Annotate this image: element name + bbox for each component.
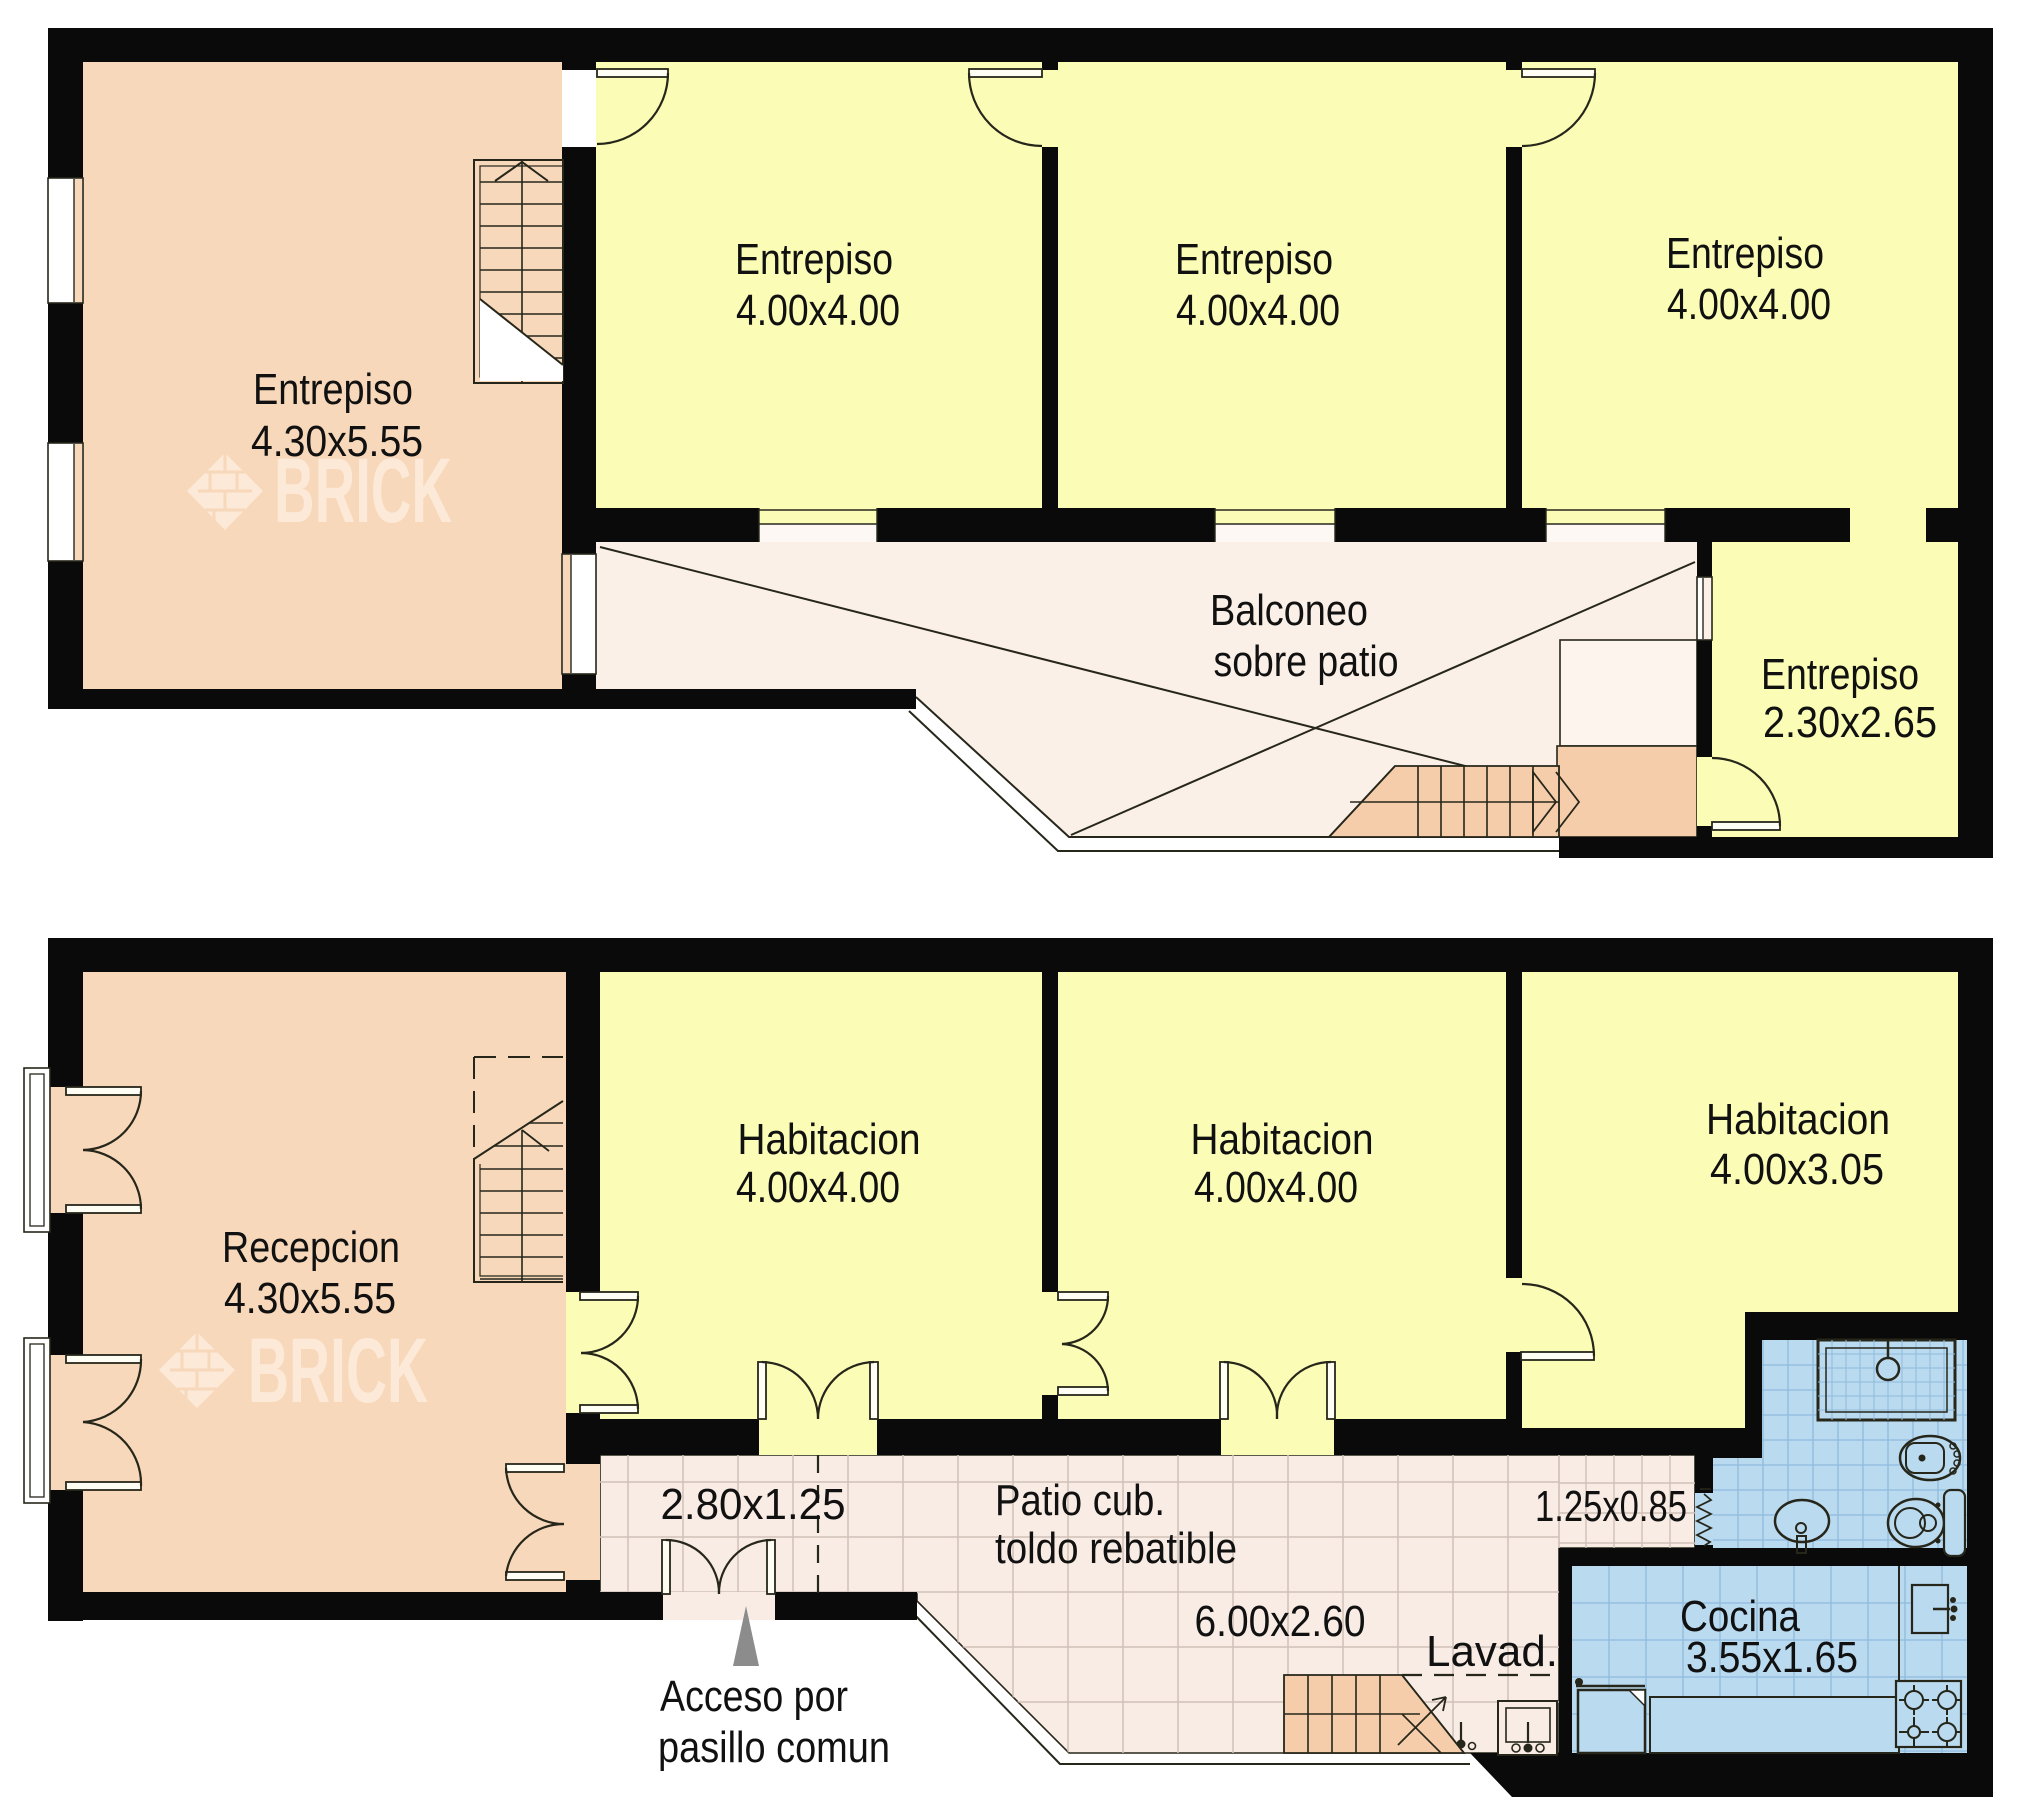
svg-text:Entrepiso: Entrepiso [1666,229,1824,278]
svg-text:1.25x0.85: 1.25x0.85 [1535,1482,1687,1531]
svg-text:4.00x4.00: 4.00x4.00 [736,1163,900,1212]
svg-text:pasillo comun: pasillo comun [658,1723,890,1772]
svg-text:Patio cub.: Patio cub. [995,1476,1165,1525]
svg-text:toldo rebatible: toldo rebatible [995,1524,1237,1573]
svg-text:4.00x4.00: 4.00x4.00 [736,286,900,335]
svg-text:4.00x4.00: 4.00x4.00 [1176,286,1340,335]
svg-text:4.00x4.00: 4.00x4.00 [1667,280,1831,329]
svg-text:3.55x1.65: 3.55x1.65 [1686,1633,1858,1682]
svg-text:4.00x4.00: 4.00x4.00 [1194,1163,1358,1212]
svg-text:Balconeo: Balconeo [1210,586,1368,635]
svg-text:Entrepiso: Entrepiso [1175,235,1333,284]
svg-text:6.00x2.60: 6.00x2.60 [1195,1597,1366,1646]
svg-text:Entrepiso: Entrepiso [1761,650,1919,699]
svg-text:2.80x1.25: 2.80x1.25 [661,1480,846,1529]
svg-text:Lavad.: Lavad. [1426,1627,1558,1676]
svg-text:Habitacion: Habitacion [1191,1115,1374,1164]
svg-text:Recepcion: Recepcion [222,1223,400,1272]
svg-text:Habitacion: Habitacion [1706,1095,1890,1144]
svg-text:Habitacion: Habitacion [738,1115,921,1164]
svg-text:4.30x5.55: 4.30x5.55 [251,417,423,466]
svg-text:BRICK: BRICK [248,1320,428,1422]
svg-text:Acceso por: Acceso por [660,1672,848,1721]
svg-text:Entrepiso: Entrepiso [253,365,413,414]
svg-text:2.30x2.65: 2.30x2.65 [1763,698,1937,747]
svg-text:4.00x3.05: 4.00x3.05 [1710,1145,1884,1194]
svg-text:sobre patio: sobre patio [1214,637,1399,686]
svg-text:Entrepiso: Entrepiso [735,235,893,284]
svg-text:4.30x5.55: 4.30x5.55 [224,1274,396,1323]
